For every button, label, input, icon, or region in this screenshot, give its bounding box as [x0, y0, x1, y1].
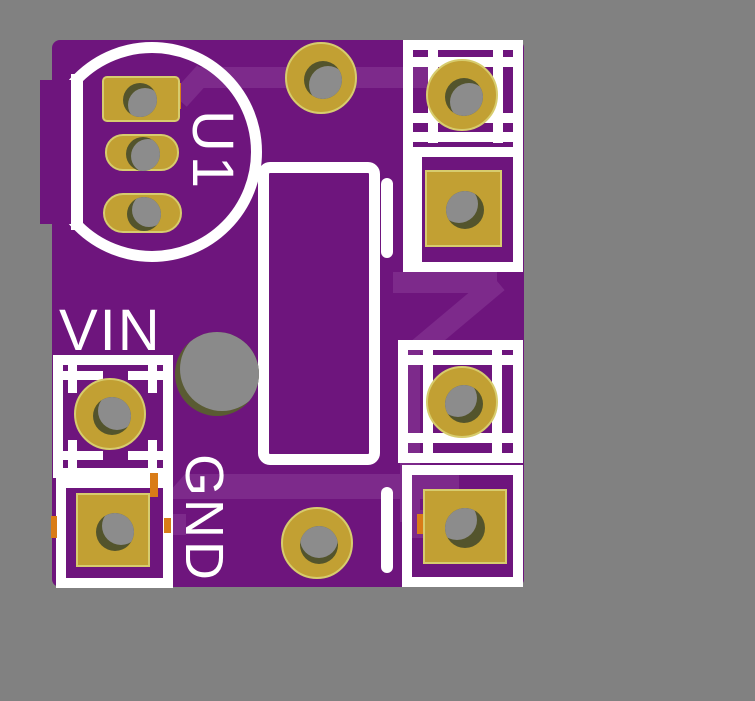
label-vin: VIN [59, 302, 162, 360]
label-gnd: GND [177, 454, 231, 583]
copper-sliver-left-1 [150, 473, 158, 497]
drill-hole [304, 61, 342, 99]
pad-u1-pin2 [105, 134, 179, 171]
pad-top-center [285, 42, 357, 114]
drill-hole [127, 197, 161, 231]
copper-sliver-left-2 [164, 518, 171, 533]
pad-u1-pin1 [102, 76, 180, 122]
pad-top-right-round [426, 59, 498, 131]
drill-hole [300, 526, 338, 564]
drill-hole [445, 385, 483, 423]
pad-vin-round [74, 378, 146, 450]
drill-hole [446, 191, 484, 229]
drill-hole [445, 78, 483, 116]
pad-bottom-center [281, 507, 353, 579]
drill-hole [445, 508, 485, 548]
silk-br-grid-h1 [398, 355, 523, 365]
pad-bottom-right-round [426, 366, 498, 438]
drill-hole [93, 397, 131, 435]
silk-side-bar-top [381, 178, 393, 258]
pad-top-right-square [425, 170, 502, 247]
pad-u1-pin3 [103, 193, 182, 233]
u1-outline-flat-edge [71, 74, 83, 230]
silk-side-bar-bottom [381, 487, 393, 573]
pad-vin-square [76, 493, 150, 567]
pad-bottom-right-square [423, 489, 507, 564]
pcb-render: VIN U1 GND [0, 0, 755, 701]
silk-left-tick-v4 [148, 440, 157, 476]
silk-tr-grid-h3 [403, 132, 523, 142]
silk-left-tick-h3 [58, 451, 103, 460]
silk-left-tick-h1 [58, 371, 103, 380]
drill-hole [123, 83, 157, 117]
drill-hole [126, 137, 160, 171]
mounting-hole [175, 332, 259, 416]
u1-outline-chord-mask [40, 80, 74, 224]
silk-left-tick-v3 [68, 440, 77, 476]
refdes-u1: U1 [183, 110, 241, 192]
drill-hole [96, 513, 134, 551]
component-body-outline [258, 162, 380, 465]
copper-sliver-board-edge [51, 516, 57, 538]
